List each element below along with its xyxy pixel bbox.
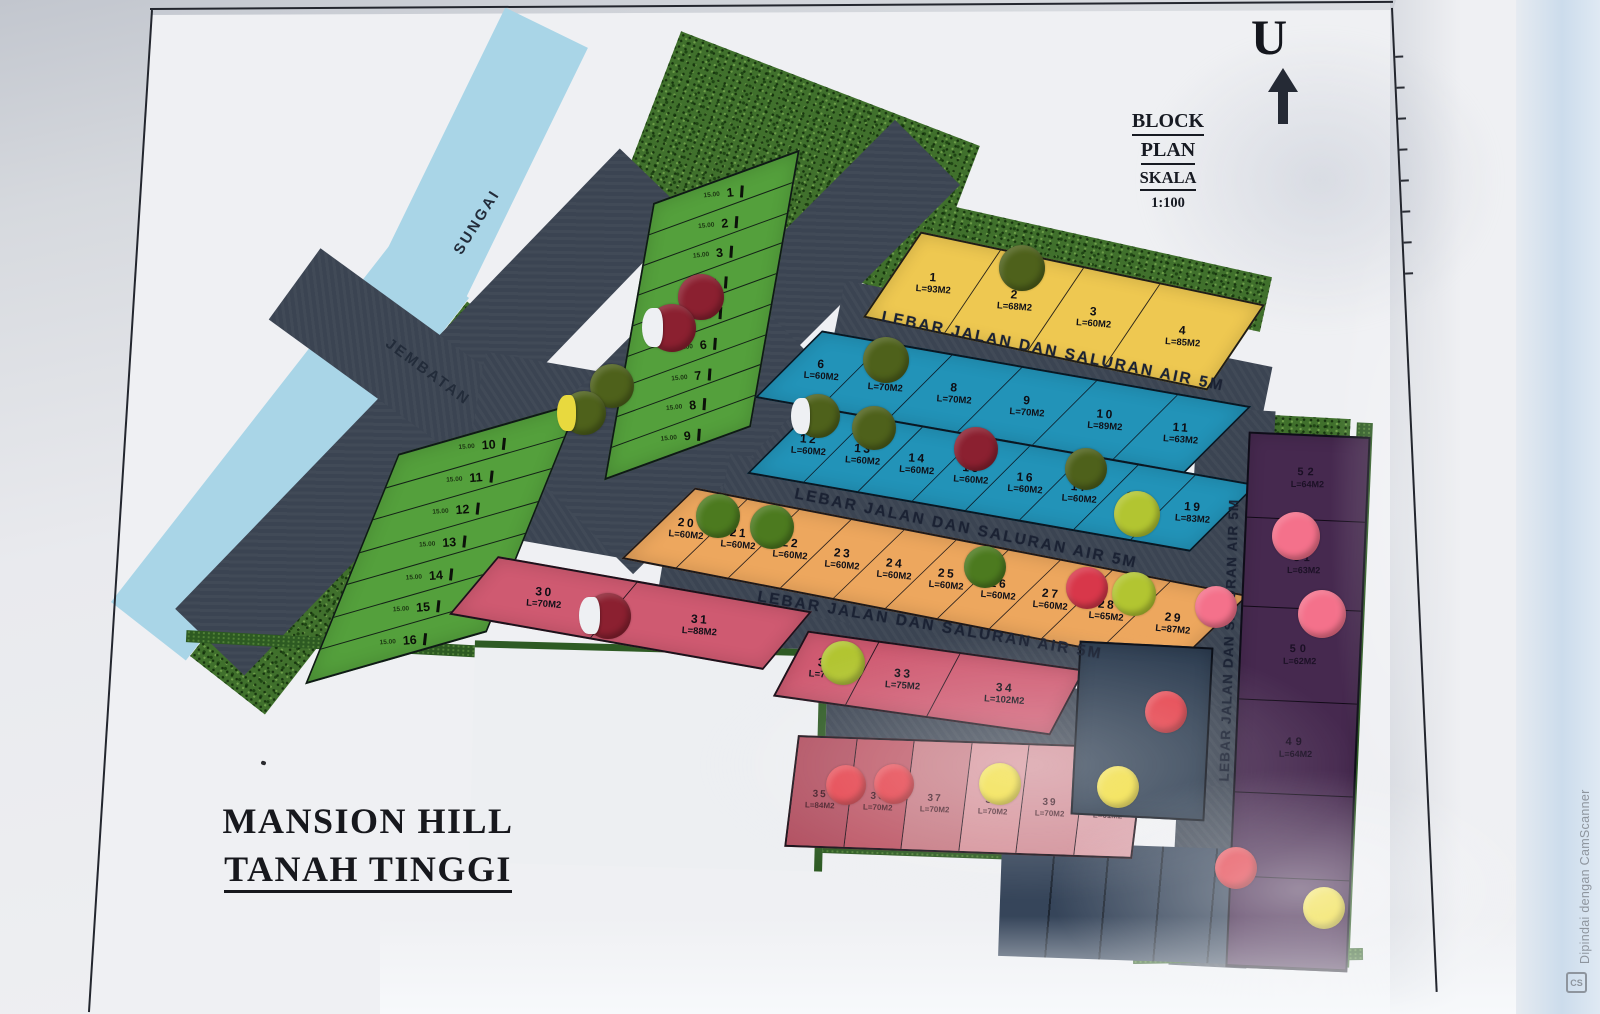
car: L=70M2 — [936, 394, 972, 408]
ldim: 15.00 — [693, 251, 710, 260]
ltick — [449, 568, 453, 580]
ldim: 15.00 — [379, 637, 396, 645]
car: L=102M2 — [984, 694, 1025, 708]
block-plan-line: PLAN — [1141, 139, 1195, 165]
car: L=60M2 — [667, 528, 703, 542]
lot-49: 49L=64M2 — [1235, 699, 1357, 797]
lno: 6 — [699, 337, 707, 352]
ltick — [730, 246, 733, 258]
ltick — [462, 535, 466, 547]
sticker-peel — [579, 597, 599, 635]
block-plan-scale: 1:100 — [1151, 195, 1185, 212]
lno: 16 — [402, 632, 417, 647]
block-plan-title: BLOCK PLAN SKALA 1:100 — [1118, 110, 1218, 212]
lno: 11 — [468, 470, 482, 485]
car: L=83M2 — [1174, 513, 1210, 527]
ldim: 15.00 — [392, 605, 409, 613]
ldim: 15.00 — [458, 443, 475, 451]
cno: 49 — [1286, 736, 1306, 749]
scanned-block-plan-photo: 15.00115.00215.00315.00415.00515.00615.0… — [0, 0, 1600, 1014]
ldim: 15.00 — [445, 475, 462, 483]
cno: 4 — [1179, 323, 1189, 338]
sticker-dot-pinkdot — [1298, 590, 1346, 638]
sticker-dot-red — [874, 764, 914, 804]
car: L=93M2 — [915, 283, 951, 297]
project-title: MANSION HILL TANAH TINGGI — [168, 800, 568, 893]
watermark-text: Dipindai dengan CamScanner — [1578, 789, 1592, 964]
block-plan-line: BLOCK — [1132, 110, 1204, 136]
car: L=70M2 — [525, 598, 561, 612]
car: L=89M2 — [1086, 420, 1122, 434]
sticker-dot-olive — [796, 394, 840, 438]
car: L=70M2 — [978, 807, 1008, 817]
car: L=65M2 — [1087, 610, 1123, 624]
car: L=88M2 — [681, 625, 717, 639]
car: L=70M2 — [920, 805, 950, 815]
cno: 50 — [1290, 643, 1310, 656]
car: L=70M2 — [867, 382, 903, 396]
ltick — [436, 600, 440, 612]
car: L=60M2 — [928, 579, 964, 593]
ldim: 15.00 — [671, 373, 688, 382]
car: L=64M2 — [1279, 749, 1312, 760]
car: L=60M2 — [1061, 493, 1097, 507]
sticker-dot-olive — [562, 391, 606, 435]
ltick — [703, 398, 706, 410]
car: L=85M2 — [1165, 337, 1201, 351]
frame-tick — [1404, 241, 1412, 243]
block-plan-line: SKALA — [1140, 168, 1197, 191]
ldim: 15.00 — [660, 434, 677, 443]
ltick — [475, 503, 479, 515]
project-title-line2: TANAH TINGGI — [224, 848, 512, 893]
sticker-dot-pinkdot — [1272, 512, 1320, 560]
car: L=60M2 — [771, 549, 807, 563]
north-indicator: U — [1240, 12, 1298, 124]
car: L=60M2 — [899, 464, 935, 478]
sticker-dot-grn — [696, 494, 740, 538]
lno: 12 — [455, 503, 470, 518]
cno: 1 — [928, 270, 938, 285]
ltick — [697, 429, 700, 441]
sticker-dot-olive — [863, 337, 909, 383]
lno: 3 — [715, 246, 723, 261]
lno: 15 — [415, 600, 430, 615]
sticker-peel — [557, 395, 576, 431]
ltick — [724, 277, 727, 289]
car: L=63M2 — [1162, 434, 1198, 448]
ltick — [423, 633, 427, 645]
ink-speck — [260, 760, 266, 765]
car: L=60M2 — [803, 370, 839, 384]
car: L=60M2 — [980, 589, 1016, 603]
car: L=60M2 — [845, 455, 881, 469]
sticker-dot-yellow — [1303, 887, 1345, 929]
car: L=70M2 — [1035, 809, 1065, 819]
cno: 37 — [928, 793, 944, 805]
car: L=60M2 — [953, 474, 989, 488]
cno: 39 — [1043, 797, 1059, 809]
ldim: 15.00 — [666, 403, 683, 412]
car: L=60M2 — [1076, 318, 1112, 332]
sticker-dot-red — [1145, 691, 1187, 733]
car: L=70M2 — [1009, 407, 1045, 421]
frame-tick — [1401, 179, 1409, 181]
lno: 2 — [721, 216, 729, 231]
sticker-dot-yellowgreen — [821, 641, 865, 685]
cno: 3 — [1089, 304, 1099, 319]
car: L=64M2 — [1291, 479, 1324, 490]
sticker-dot-grn — [750, 505, 794, 549]
sticker-dot-red2 — [1066, 567, 1108, 609]
lno: 9 — [683, 429, 691, 444]
cno: 52 — [1298, 466, 1318, 479]
project-title-line1: MANSION HILL — [168, 800, 568, 842]
sticker-dot-darkred — [954, 427, 998, 471]
car: L=60M2 — [1007, 483, 1043, 497]
lno: 14 — [428, 568, 443, 583]
car: L=68M2 — [996, 301, 1032, 315]
car: L=62M2 — [1283, 656, 1316, 667]
sticker-dot-darkred — [648, 304, 696, 352]
sticker-dot-yellowgreen — [1114, 491, 1160, 537]
camscanner-logo-icon: CS — [1566, 972, 1587, 993]
sticker-dot-yellow — [979, 763, 1021, 805]
ltick — [713, 337, 716, 349]
paper-f old-shadow — [1390, 0, 1500, 1014]
car: L=60M2 — [719, 539, 755, 553]
car: L=60M2 — [824, 559, 860, 573]
lno: 1 — [726, 185, 734, 200]
sticker-dot-olive — [1065, 448, 1107, 490]
car: L=63M2 — [1287, 565, 1320, 576]
car: L=60M2 — [1032, 599, 1068, 613]
sticker-dot-yellowgreen — [1112, 572, 1156, 616]
ldim: 15.00 — [698, 221, 715, 230]
car: L=75M2 — [884, 680, 920, 694]
sticker-dot-yellow — [1097, 766, 1139, 808]
car: L=60M2 — [791, 445, 827, 459]
ltick — [501, 438, 505, 450]
ltick — [740, 185, 743, 197]
lno: 10 — [481, 438, 496, 453]
sticker-dot-olive — [852, 406, 896, 450]
cno: 6 — [816, 357, 826, 372]
sticker-peel — [791, 398, 810, 434]
frame-tick — [1402, 210, 1410, 212]
cno: 8 — [950, 381, 960, 396]
section-darkblue: 41 — [1071, 641, 1214, 822]
car: L=84M2 — [805, 801, 835, 811]
ldim: 15.00 — [405, 572, 422, 580]
unlabeled-lots-dark — [998, 841, 1237, 964]
car: L=60M2 — [876, 569, 912, 583]
ldim: 15.00 — [418, 540, 435, 548]
sticker-dot-olive — [999, 245, 1045, 291]
sticker-dot-pinkdot — [1195, 586, 1237, 628]
sticker-peel — [642, 308, 663, 347]
lno: 7 — [694, 368, 702, 383]
car: L=70M2 — [863, 803, 893, 813]
ltick — [488, 471, 492, 483]
ldim: 15.00 — [432, 508, 449, 516]
car: L=87M2 — [1154, 623, 1190, 637]
north-arrow-icon — [1268, 68, 1298, 92]
north-arrow-stem — [1278, 92, 1288, 124]
ltick — [708, 368, 711, 380]
sticker-dot-grn — [964, 546, 1006, 588]
lno: 13 — [441, 535, 456, 550]
lno: 8 — [689, 398, 697, 413]
sticker-dot-red — [826, 765, 866, 805]
sticker-dot-darkred — [585, 593, 631, 639]
sticker-dot-red — [1215, 847, 1257, 889]
lot-52: 52L=64M2 — [1247, 434, 1369, 523]
north-letter: U — [1240, 12, 1298, 62]
ldim: 15.00 — [703, 190, 720, 199]
cno: 9 — [1023, 393, 1033, 408]
ltick — [735, 216, 738, 228]
